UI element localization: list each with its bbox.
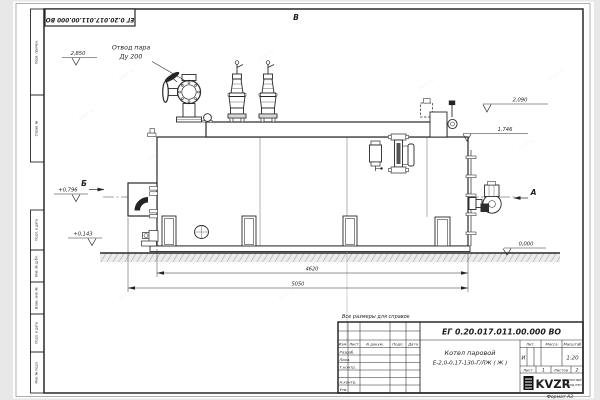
scale-value: 1:20 (566, 356, 579, 362)
side-stamp-podp-data-1: Подп. и дата (35, 219, 39, 241)
feed-pump (142, 231, 159, 247)
title-doc-number: ЕГ 0.20.017.011.00.000 ВО (442, 328, 561, 337)
elevation-drum-top: 1,746 (498, 127, 514, 133)
col-podp: Подп. (392, 341, 404, 346)
mass-label: Масса (545, 341, 558, 346)
col-data: Дата (407, 341, 419, 346)
small-nozzle (203, 114, 212, 122)
side-stamp-vzam-inv: Взам. инв. № (35, 287, 39, 309)
col-ndokum: N докум. (366, 341, 384, 346)
valve-handwheel (163, 82, 169, 103)
col-izm: Изм. (339, 341, 348, 346)
logo-sub-2: ЗАВОД РЭП (564, 383, 582, 387)
steam-outlet-label-1: Отвод пара (112, 45, 151, 52)
logo-sub-1: КОТЕЛЬНЫЙ (562, 377, 582, 382)
elevation-valve-top: 2,850 (71, 51, 87, 57)
side-stamp-podp-data-2: Подп. и дата (35, 322, 39, 344)
sheets-label: Листов (553, 367, 569, 372)
row-razrab: Разраб. (340, 349, 355, 354)
lit-label: Лит. (525, 341, 535, 346)
steam-outlet-label-2: Ду 200 (119, 54, 143, 61)
side-stamp-inv-dubl: Инв. № дубл. (35, 255, 39, 277)
elevation-ground: 0,000 (519, 242, 535, 248)
manhole (195, 226, 209, 239)
elevation-fitting-top: 2,090 (513, 98, 529, 104)
reference-note: Все размеры для справок (342, 314, 410, 320)
valve-body (178, 81, 201, 104)
flipped-doc-number: ЕГ 0.20.017.011.00.000 ВО (46, 16, 135, 22)
ground (100, 253, 560, 262)
row-utv: Утв. (340, 387, 348, 392)
product-name: Котел паровой (445, 349, 496, 357)
view-label-a: А (530, 188, 537, 197)
side-stamp-perv-primen: Перв. примен. (35, 40, 39, 64)
side-stamp-inv-podl: Инв. № подл. (35, 362, 39, 384)
format-label: Формат А3 (547, 394, 573, 400)
drum-platform (206, 122, 447, 137)
sheets-value: 2 (576, 368, 579, 374)
flipped-doc-number-box: ЕГ 0.20.017.011.00.000 ВО (45, 9, 135, 26)
view-label-b: Б (81, 179, 87, 188)
burner-box (128, 183, 158, 218)
lifting-eye (448, 119, 457, 128)
skid-frame (150, 246, 470, 252)
row-prov: Пров. (340, 357, 351, 362)
scale-label: Масштаб (563, 341, 582, 346)
product-designation: Е-2,0-0,17-130-Г/ЛЖ ( Ж ) (433, 361, 508, 367)
col-list: Лист (348, 341, 359, 346)
view-label-v: В (293, 13, 299, 22)
dim-overall-length: 5050 (292, 282, 305, 288)
side-stamp-sprav: Справ. № (35, 120, 39, 136)
boiler-assembly-drawing: kvzr.ru kvzr.ru kvzr.ru kvzr.ru kvzr.ru … (0, 0, 600, 400)
dim-support-span: 4620 (306, 267, 319, 273)
row-tkontr: Т.контр. (340, 364, 356, 369)
sheet-value: 1 (542, 368, 545, 374)
drawing-sheet: kvzr.ru kvzr.ru kvzr.ru kvzr.ru kvzr.ru … (0, 0, 600, 400)
lit-value: И (522, 356, 526, 362)
elevation-burner-axis: +0,796 (58, 188, 78, 194)
elevation-frame-top: +0,143 (73, 232, 92, 238)
row-nkontr: Н.контр. (340, 379, 357, 384)
sheet-label: Лист (522, 367, 533, 372)
top-cock (449, 101, 455, 106)
